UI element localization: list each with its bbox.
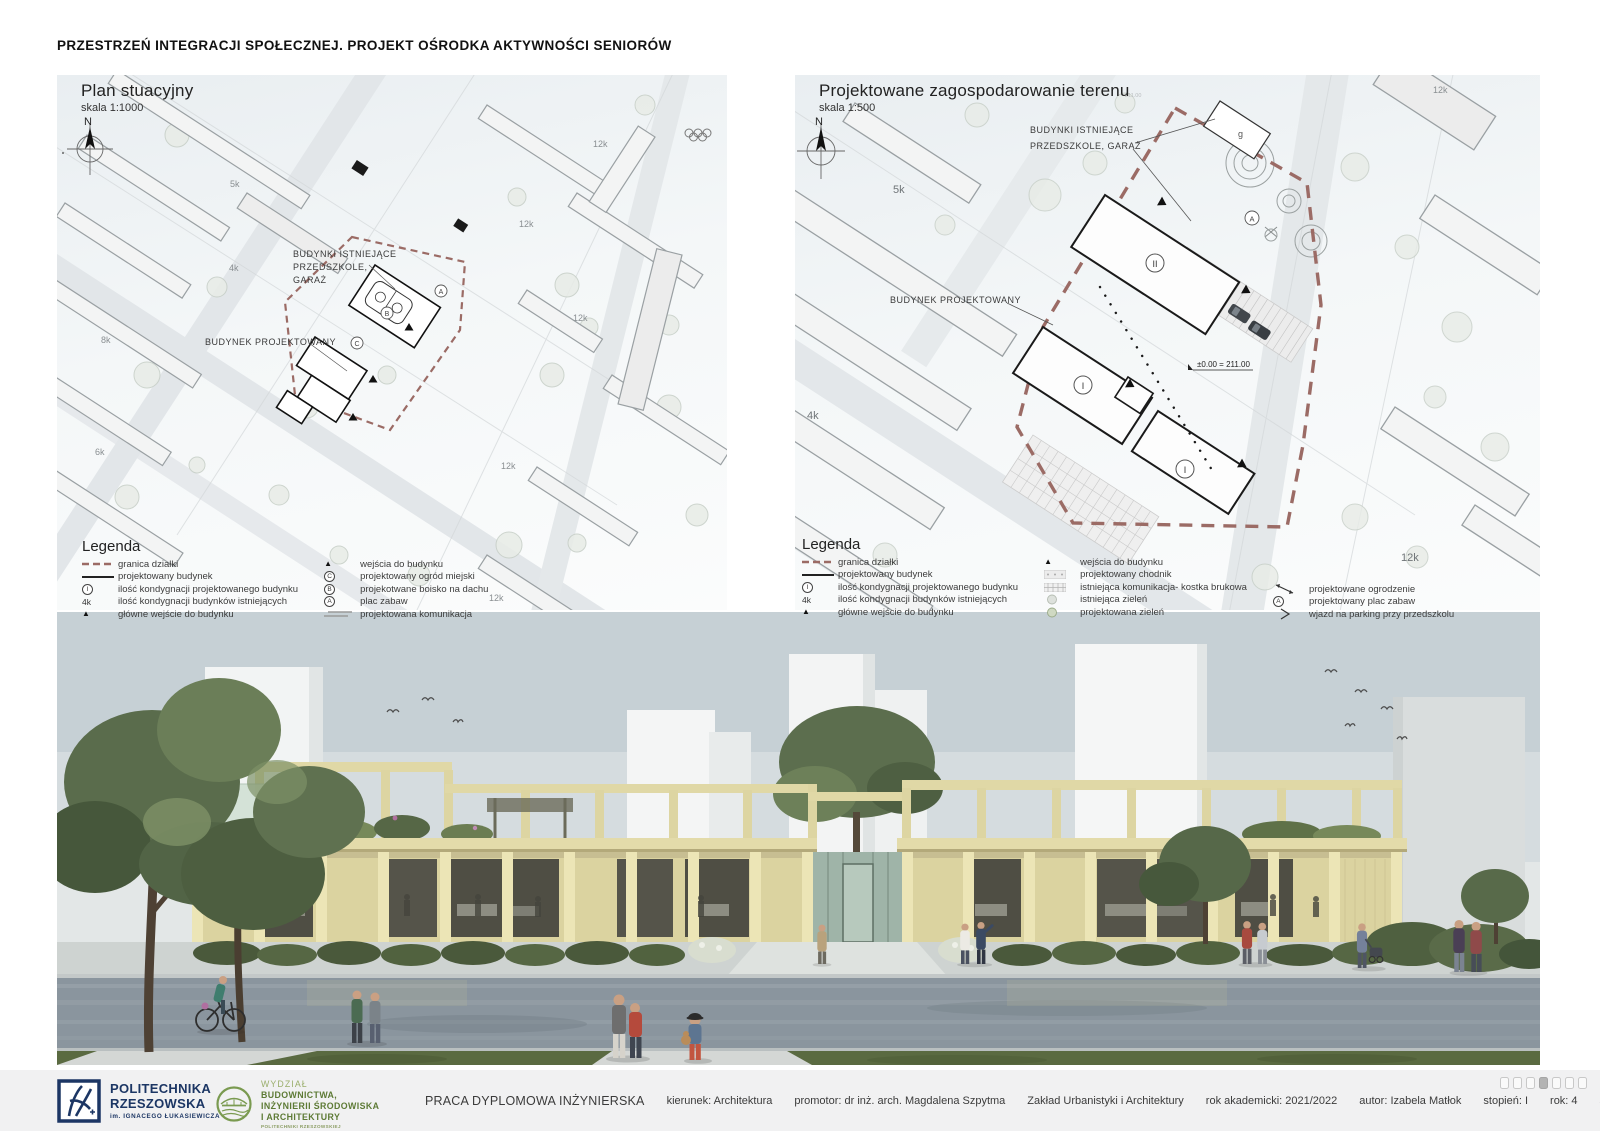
wbisia-logo-block[interactable]: WYDZIAŁ BUDOWNICTWA, INŻYNIERII ŚRODOWIS… [215, 1079, 379, 1129]
year: rok: 4 [1550, 1095, 1578, 1107]
storeys-symbol: 4k [82, 597, 118, 607]
svg-text:6k: 6k [95, 447, 105, 457]
legend-title: Legenda [82, 538, 488, 555]
main-entrance-symbol: ▲ [82, 610, 118, 618]
page-dot[interactable] [1513, 1077, 1522, 1089]
map-right-scale: skala 1:500 [819, 102, 1130, 114]
north-arrow: N [797, 116, 845, 179]
wbisia-line1: BUDOWNICTWA, [261, 1090, 379, 1101]
legend-right: Legenda granica działki projektowany bud… [802, 536, 1454, 621]
footer-info: PRACA DYPLOMOWA INŻYNIERSKA kierunek: Ar… [425, 1070, 1600, 1131]
svg-text:12k: 12k [519, 219, 534, 229]
prz-name-line3: im. IGNACEGO ŁUKASIEWICZA [110, 1113, 220, 1120]
site-plan-right[interactable]: II I I A ±0.00 = 211.00 BUDYNKI ISTNIEJĄ… [795, 75, 1540, 610]
svg-text:5k: 5k [230, 179, 240, 189]
svg-text:B: B [385, 311, 390, 318]
svg-text:A: A [1249, 215, 1254, 224]
svg-text:I: I [1184, 465, 1187, 475]
circle-i-symbol: I [802, 582, 838, 593]
entrance-symbol: ▲ [1044, 558, 1080, 566]
svg-text:12k: 12k [489, 593, 504, 603]
prz-name-line2: RZESZOWSKA [110, 1097, 220, 1112]
site-plan-right-drawing: II I I A ±0.00 = 211.00 BUDYNKI ISTNIEJĄ… [795, 75, 1540, 610]
site-plan-left[interactable]: A B C BUDYNKI ISTNIEJĄCE PRZEDSZKOLE, GA… [57, 75, 727, 610]
fence-symbol [1273, 583, 1309, 595]
page-dot[interactable] [1578, 1077, 1587, 1089]
wbisia-line4: POLITECHNIKI RZESZOWSKIEJ [261, 1124, 379, 1129]
page-dot[interactable] [1500, 1077, 1509, 1089]
solid-line-symbol [802, 572, 838, 578]
circle-c-symbol: C [324, 571, 360, 582]
svg-text:5k: 5k [893, 184, 905, 196]
svg-text:C: C [354, 341, 359, 348]
existing-green-symbol [1044, 594, 1080, 605]
paving-symbol [1044, 583, 1080, 592]
svg-text:I: I [1082, 381, 1085, 391]
circle-a-symbol: A [1273, 596, 1309, 607]
prz-logo-block[interactable]: POLITECHNIKA RZESZOWSKA im. IGNACEGO ŁUK… [57, 1079, 220, 1123]
degree: stopień: I [1483, 1095, 1528, 1107]
department: Zakład Urbanistyki i Architektury [1027, 1095, 1184, 1107]
svg-text:N: N [815, 116, 823, 128]
prz-name-line1: POLITECHNIKA [110, 1082, 220, 1097]
map-left-scale: skala 1:1000 [81, 102, 193, 114]
circle-i-symbol: I [82, 584, 118, 595]
page-dot[interactable] [1565, 1077, 1574, 1089]
dashed-line-symbol [82, 561, 118, 567]
entrance-symbol: ▲ [324, 560, 360, 568]
footer: POLITECHNIKA RZESZOWSKA im. IGNACEGO ŁUK… [0, 1070, 1600, 1131]
proposed-green-symbol [1044, 607, 1080, 618]
render-drawing [57, 612, 1540, 1065]
svg-text:GARAŻ: GARAŻ [293, 275, 327, 285]
site-plan-left-drawing: A B C BUDYNKI ISTNIEJĄCE PRZEDSZKOLE, GA… [57, 75, 727, 610]
legend-left: Legenda granica działki projektowany bud… [82, 538, 488, 621]
wbisia-line2: INŻYNIERII ŚRODOWISKA [261, 1101, 379, 1112]
svg-text:N: N [84, 116, 92, 128]
label-existing: BUDYNKI ISTNIEJĄCE [293, 249, 397, 259]
svg-text:12k: 12k [573, 313, 588, 323]
svg-text:12k: 12k [593, 139, 608, 149]
foreground-ground [57, 1051, 1540, 1065]
poster: PRZESTRZEŃ INTEGRACJI SPOŁECZNEJ. PROJEK… [0, 0, 1600, 1131]
main-entrance-symbol: ▲ [802, 608, 838, 616]
circle-a-symbol: A [324, 596, 360, 607]
wbisia-line0: WYDZIAŁ [261, 1079, 379, 1090]
page-title: PRZESTRZEŃ INTEGRACJI SPOŁECZNEJ. PROJEK… [57, 38, 672, 53]
svg-text:4k: 4k [229, 263, 239, 273]
svg-text:PRZEDSZKOLE,: PRZEDSZKOLE, [293, 262, 368, 272]
double-line-symbol [324, 610, 360, 618]
sidewalk-symbol [1044, 570, 1080, 579]
svg-text:PRZEDSZKOLE, GARAŻ: PRZEDSZKOLE, GARAŻ [1030, 141, 1141, 151]
wbisia-logo-icon [215, 1085, 253, 1123]
svg-text:12k: 12k [501, 461, 516, 471]
legend-title: Legenda [802, 536, 1454, 553]
level-annotation: ±0.00 = 211.00 [1188, 360, 1253, 370]
storeys-symbol: 4k [802, 595, 838, 605]
field-of-study: kierunek: Architektura [667, 1095, 773, 1107]
trees [873, 93, 1509, 590]
circle-b-symbol: B [324, 584, 360, 595]
road [57, 974, 1540, 1051]
page-dot[interactable] [1552, 1077, 1561, 1089]
author: autor: Izabela Matłok [1359, 1095, 1461, 1107]
label-proposed: BUDYNEK PROJEKTOWANY [205, 337, 336, 347]
dashed-line-symbol [802, 559, 838, 565]
page-dot[interactable] [1526, 1077, 1535, 1089]
svg-text:g: g [1238, 129, 1243, 139]
driveway-symbol [1273, 608, 1309, 620]
entrance-walkway [727, 942, 947, 976]
academic-year: rok akademicki: 2021/2022 [1206, 1095, 1337, 1107]
svg-text:A: A [439, 289, 444, 296]
label-existing: BUDYNKI ISTNIEJĄCE [1030, 125, 1134, 135]
svg-text:4k: 4k [807, 410, 819, 422]
page-indicator[interactable] [1500, 1077, 1587, 1089]
olympic-rings-icon [685, 129, 711, 141]
map-right-title: Projektowane zagospodarowanie terenu [819, 81, 1130, 101]
wbisia-line3: I ARCHITEKTURY [261, 1112, 379, 1123]
svg-text:±0.00 = 211.00: ±0.00 = 211.00 [1197, 360, 1251, 369]
render-view[interactable] [57, 612, 1540, 1065]
solid-line-symbol [82, 574, 118, 580]
svg-text:12k: 12k [1433, 85, 1448, 95]
prz-logo-icon [57, 1079, 101, 1123]
supervisor: promotor: dr inż. arch. Magdalena Szpytm… [794, 1095, 1005, 1107]
page-dot-active[interactable] [1539, 1077, 1548, 1089]
svg-text:8k: 8k [101, 335, 111, 345]
svg-text:II: II [1152, 259, 1157, 269]
thesis-type: PRACA DYPLOMOWA INŻYNIERSKA [425, 1094, 645, 1108]
label-proposed: BUDYNEK PROJEKTOWANY [890, 295, 1021, 305]
map-left-title: Plan stuacyjny [81, 81, 193, 101]
